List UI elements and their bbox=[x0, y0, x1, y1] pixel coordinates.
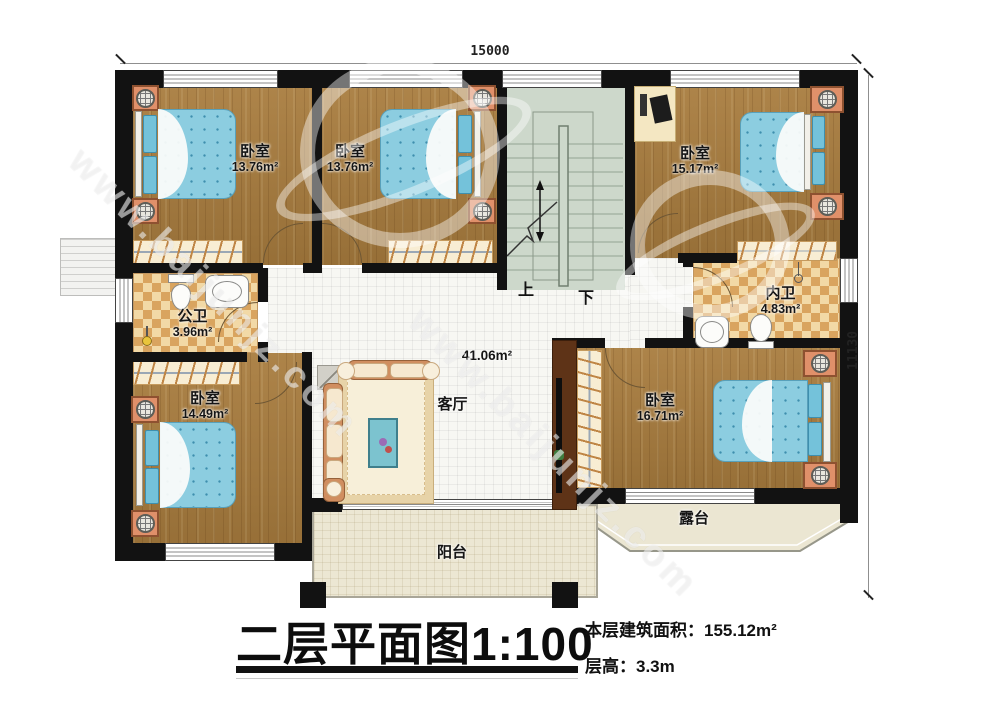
sofa-cushion bbox=[326, 424, 343, 458]
wall-segment bbox=[362, 263, 507, 273]
room-label-bedroom-top-mid: 卧室 13.76m² bbox=[300, 143, 400, 175]
closet bbox=[133, 361, 240, 385]
window bbox=[840, 258, 858, 303]
bed-pillow bbox=[812, 152, 825, 185]
room-label-bath-public: 公卫 3.96m² bbox=[150, 308, 235, 340]
wall-segment bbox=[275, 543, 312, 561]
wall-segment bbox=[755, 488, 840, 504]
sink-icon bbox=[700, 321, 724, 343]
sink-icon bbox=[212, 281, 242, 302]
room-label-bath-ensuite: 内卫 4.83m² bbox=[738, 285, 823, 317]
bed-pillow bbox=[458, 156, 472, 194]
plant-icon bbox=[554, 450, 564, 460]
speaker-icon bbox=[640, 94, 647, 116]
sofa-cushion bbox=[352, 363, 388, 378]
title-underline bbox=[236, 666, 578, 673]
room-label-bedroom-bottom-left: 卧室 14.49m² bbox=[155, 390, 255, 422]
tv-icon bbox=[556, 378, 562, 493]
nightstand bbox=[132, 85, 159, 111]
closet bbox=[577, 350, 602, 488]
wall-segment bbox=[258, 268, 268, 302]
nightstand bbox=[810, 193, 844, 220]
pillar bbox=[552, 582, 578, 608]
sofa-cushion bbox=[326, 388, 343, 422]
wall-segment bbox=[312, 88, 322, 273]
wall-segment bbox=[303, 263, 322, 273]
living-room-area-label: 41.06m² bbox=[437, 348, 537, 364]
bed-pillow bbox=[145, 430, 159, 466]
room-name: 卧室 bbox=[155, 390, 255, 407]
bed-headboard bbox=[823, 382, 831, 462]
room-area: 14.49m² bbox=[155, 407, 255, 421]
room-name: 卧室 bbox=[300, 143, 400, 160]
window bbox=[625, 488, 755, 504]
room-name: 阳台 bbox=[412, 544, 492, 561]
room-name: 卧室 bbox=[610, 392, 710, 409]
wall-segment bbox=[577, 488, 625, 504]
bed-pillow bbox=[143, 156, 157, 194]
room-area: 13.76m² bbox=[300, 160, 400, 174]
wall-segment bbox=[115, 543, 165, 561]
room-name: 卧室 bbox=[205, 143, 305, 160]
room-area: 3.96m² bbox=[150, 325, 235, 339]
window bbox=[163, 70, 278, 88]
sofa-round-pillow bbox=[422, 362, 440, 380]
wall-segment bbox=[302, 352, 312, 548]
pillar bbox=[300, 582, 326, 608]
bed-pillow bbox=[808, 422, 822, 456]
toilet-tank-icon bbox=[748, 341, 774, 349]
wall-segment bbox=[258, 342, 268, 362]
bed-headboard bbox=[135, 111, 142, 197]
bed-pillow bbox=[458, 115, 472, 153]
window bbox=[670, 70, 800, 88]
room-label-living: 客厅 bbox=[420, 396, 485, 413]
floor-plan-canvas: 卧室 13.76m² 卧室 13.76m² 卧室 15.17m² 卧室 14.4… bbox=[0, 0, 1000, 706]
plan-specs: 本层建筑面积：155.12m² 层高：3.3m bbox=[585, 616, 777, 677]
nightstand bbox=[131, 510, 159, 537]
stairs-down-label: 下 bbox=[578, 284, 594, 308]
sofa-round-pillow bbox=[326, 481, 342, 497]
nightstand bbox=[132, 198, 159, 224]
window bbox=[349, 70, 463, 88]
dimension-line-right bbox=[868, 75, 869, 598]
toilet-tank-icon bbox=[168, 274, 194, 283]
bed-headboard bbox=[804, 114, 811, 190]
flower-icon bbox=[379, 438, 387, 446]
nightstand bbox=[810, 86, 844, 113]
nightstand bbox=[803, 350, 837, 377]
window bbox=[502, 70, 602, 88]
flower-icon bbox=[385, 446, 392, 453]
floor-area-value: 155.12m² bbox=[704, 621, 777, 640]
sofa-round-pillow bbox=[337, 362, 355, 380]
hook-icon bbox=[794, 274, 803, 283]
dimension-width-label: 15000 bbox=[430, 44, 550, 59]
floor-height-value: 3.3m bbox=[636, 657, 675, 676]
floor-height-label: 层高： bbox=[585, 657, 636, 676]
closet bbox=[737, 241, 837, 261]
coffee-table bbox=[368, 418, 398, 468]
room-area: 13.76m² bbox=[205, 160, 305, 174]
wall-segment bbox=[497, 88, 507, 290]
room-label-terrace: 露台 bbox=[654, 510, 734, 527]
bed-headboard bbox=[136, 424, 143, 506]
room-name: 露台 bbox=[654, 510, 734, 527]
room-label-bedroom-top-right: 卧室 15.17m² bbox=[645, 145, 745, 177]
dimension-height-label: 11130 bbox=[846, 300, 862, 370]
bed-pillow bbox=[145, 468, 159, 504]
title-underline-thin bbox=[236, 678, 578, 679]
window bbox=[115, 278, 133, 323]
stairs-up-label: 上 bbox=[518, 276, 534, 300]
room-name: 公卫 bbox=[150, 308, 235, 325]
room-area: 16.71m² bbox=[610, 409, 710, 423]
room-area: 41.06m² bbox=[437, 348, 537, 364]
closet bbox=[133, 240, 243, 264]
wall-segment bbox=[115, 352, 247, 362]
nightstand bbox=[803, 462, 837, 489]
nightstand bbox=[468, 198, 496, 224]
wall-segment bbox=[683, 253, 693, 267]
nightstand bbox=[468, 85, 496, 111]
room-label-bedroom-top-left: 卧室 13.76m² bbox=[205, 143, 305, 175]
bed-pillow bbox=[143, 115, 157, 153]
room-name: 卧室 bbox=[645, 145, 745, 162]
room-name: 客厅 bbox=[420, 396, 485, 413]
bed-pillow bbox=[808, 384, 822, 418]
floor-area-line: 本层建筑面积：155.12m² bbox=[585, 616, 777, 641]
wall-segment bbox=[278, 70, 349, 88]
floor-area-label: 本层建筑面积： bbox=[585, 621, 704, 640]
wall-segment bbox=[115, 263, 263, 273]
exterior-steps bbox=[60, 238, 116, 296]
window bbox=[165, 543, 275, 561]
bed-headboard bbox=[474, 111, 481, 197]
bed-pillow bbox=[812, 116, 825, 149]
floor-height-line: 层高：3.3m bbox=[585, 652, 777, 677]
stair-treads bbox=[505, 86, 625, 290]
closet bbox=[388, 240, 493, 264]
plan-title: 二层平面图1:100 bbox=[236, 608, 594, 674]
sofa-cushion bbox=[390, 363, 426, 378]
room-label-bedroom-bottom-right: 卧室 16.71m² bbox=[610, 392, 710, 424]
room-area: 15.17m² bbox=[645, 162, 745, 176]
room-name: 内卫 bbox=[738, 285, 823, 302]
room-label-balcony: 阳台 bbox=[412, 544, 492, 561]
room-area: 4.83m² bbox=[738, 302, 823, 316]
dimension-line-top bbox=[120, 63, 857, 64]
